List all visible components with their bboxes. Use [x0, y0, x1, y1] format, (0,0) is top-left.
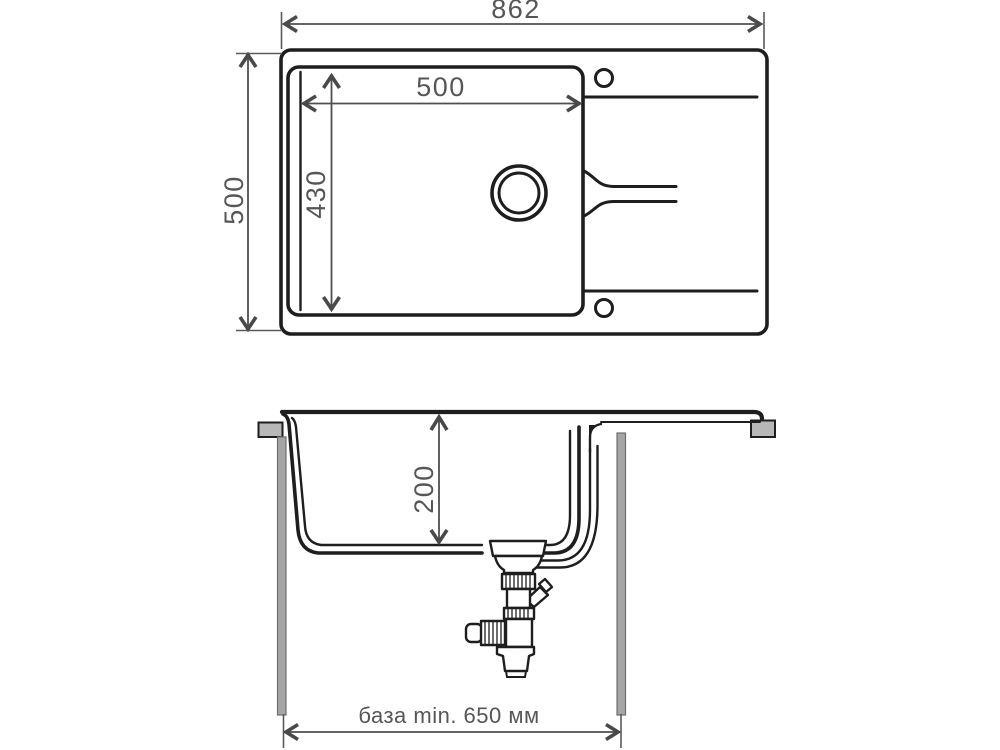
siphon-assembly [466, 541, 552, 677]
drain-flange-plate [490, 541, 546, 556]
dim-label-200: 200 [409, 464, 439, 514]
cabinet-panel-left [278, 437, 287, 715]
dim-label-base: база min. 650 мм [358, 703, 539, 728]
plan-drain-groove-lower [584, 202, 676, 217]
bowl-wall-outer-left [283, 414, 482, 553]
bowl-wall-inner-left [292, 418, 482, 545]
siphon-nut-upper-ribs [506, 575, 530, 588]
mounting-bracket-left [259, 423, 283, 438]
bowl-wall-inner-right [536, 431, 570, 545]
dim-label-430: 430 [301, 169, 331, 219]
plan-drain-groove-upper [584, 171, 676, 187]
dim-bowl-depth: 430 [301, 76, 340, 309]
drain-flange-cup [495, 556, 542, 573]
sink-drawing-svg: 862 500 500 430 [0, 0, 1000, 750]
technical-drawing: 862 500 500 430 [0, 0, 1000, 750]
dim-base-width: база min. 650 мм [284, 703, 622, 748]
dim-label-500-bowl: 500 [416, 72, 466, 102]
siphon-body [506, 619, 532, 647]
siphon-bottom-cup [497, 647, 534, 671]
section-rim-top [282, 412, 762, 419]
dim-overall-width: 862 [282, 0, 765, 49]
dim-bowl-height: 200 [409, 417, 447, 542]
dim-overall-depth: 500 [219, 54, 282, 331]
plan-tap-hole-top [596, 70, 613, 87]
dim-bowl-width: 500 [304, 72, 579, 111]
plan-view [281, 50, 767, 334]
siphon-horn-cap [466, 624, 482, 642]
section-view [259, 412, 776, 715]
plan-drain-hole-inner [499, 173, 539, 213]
plan-tap-hole-bottom [596, 300, 613, 317]
dim-label-862: 862 [491, 0, 541, 24]
dim-label-500-depth: 500 [219, 175, 249, 225]
siphon-tube [507, 589, 530, 608]
cabinet-panel-right [617, 433, 626, 715]
bowl-wall-outer-right [536, 427, 579, 553]
